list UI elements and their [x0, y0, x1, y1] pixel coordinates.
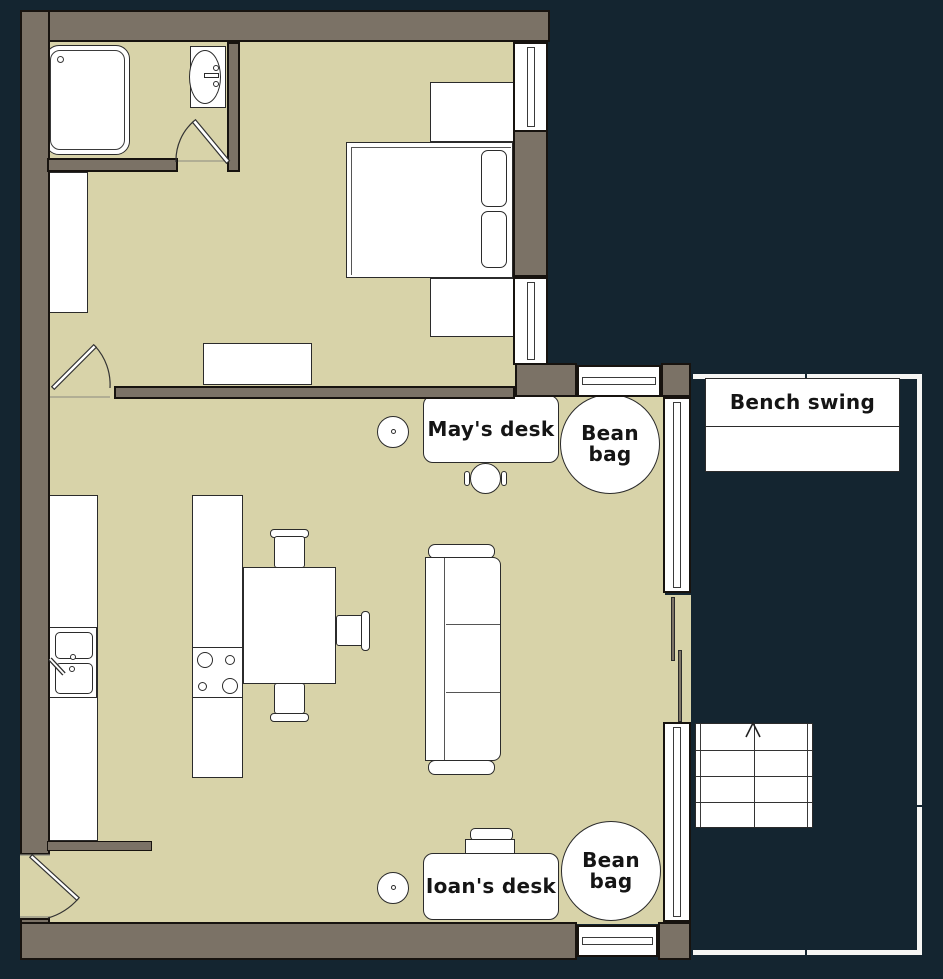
stairs[interactable]	[695, 723, 813, 828]
bedroom-window-top[interactable]	[513, 42, 548, 132]
chair-south-backrest	[270, 713, 309, 722]
bedside-cabinet-bottom[interactable]	[430, 278, 515, 337]
wall-bottom-right-block	[658, 922, 691, 960]
bathroom-faucet-knob-bottom	[213, 81, 219, 87]
may-chair-armrest-right	[501, 471, 507, 486]
balcony-railing-bottom	[693, 950, 922, 955]
burner-large-top	[197, 652, 213, 668]
stool-top-dot	[391, 429, 396, 434]
wall-kitchen-stub	[47, 841, 152, 851]
dresser[interactable]	[203, 343, 312, 385]
bathroom-faucet	[204, 73, 219, 78]
window-glass	[673, 402, 681, 588]
bedside-cabinet-top[interactable]	[430, 82, 515, 142]
wall-top	[20, 10, 550, 42]
living-window-east-lower[interactable]	[663, 722, 691, 922]
sofa-cushion-divider-2	[446, 692, 500, 693]
chair-north-seat[interactable]	[274, 536, 305, 568]
railing-joint-bottom	[805, 950, 807, 955]
pillow-bottom	[481, 211, 507, 268]
window-glass	[673, 727, 681, 917]
bean-bag-bottom[interactable]: Bean bag	[561, 821, 661, 921]
stairs-center-line	[754, 724, 755, 827]
wall-corner-block	[515, 363, 577, 397]
window-glass	[582, 377, 656, 385]
floor-plan: May's desk Bean bag Ioan's desk Bean bag…	[0, 0, 943, 979]
window-glass	[582, 937, 653, 945]
sofa-back-line	[444, 558, 445, 760]
living-window-north[interactable]	[577, 365, 661, 397]
railing-joint-right	[917, 805, 922, 807]
window-glass	[527, 282, 535, 360]
wall-left-upper	[20, 10, 50, 855]
chair-east-seat[interactable]	[336, 615, 364, 646]
may-chair[interactable]	[470, 463, 501, 494]
ioan-chair-seat[interactable]	[465, 839, 515, 854]
bean-bag-top[interactable]: Bean bag	[560, 394, 660, 494]
sliding-door-floor	[663, 595, 691, 722]
shower-drain	[57, 56, 64, 63]
wall-bedroom-divider	[114, 386, 515, 399]
burner-large-bottom	[222, 678, 238, 694]
bench-swing-label: Bench swing	[730, 392, 875, 413]
shower-inner-rim	[50, 50, 125, 150]
may-desk[interactable]: May's desk	[423, 395, 559, 463]
balcony-railing-right	[917, 374, 922, 955]
chair-east-backrest	[361, 611, 370, 651]
ioan-desk-label: Ioan's desk	[426, 876, 556, 897]
stool-bottom-dot	[391, 885, 396, 890]
sink-knob-bottom	[69, 666, 75, 672]
window-glass	[527, 47, 535, 127]
wall-bedroom-right-mid	[513, 130, 548, 277]
bench-swing[interactable]: Bench swing	[705, 378, 900, 472]
wall-bottom	[20, 922, 577, 960]
pillow-top	[481, 150, 507, 207]
living-window-south[interactable]	[577, 925, 658, 957]
wall-bathroom-bottom	[47, 158, 178, 172]
ioan-desk[interactable]: Ioan's desk	[423, 853, 559, 920]
sliding-door-panel-1[interactable]	[671, 597, 675, 661]
sliding-door-panel-2[interactable]	[678, 650, 682, 722]
bedroom-window-bottom[interactable]	[513, 277, 548, 365]
wardrobe[interactable]	[48, 172, 88, 313]
wall-top-right-block	[661, 363, 691, 397]
sofa-armrest-bottom	[428, 760, 495, 775]
may-desk-label: May's desk	[428, 419, 555, 440]
burner-small-bottom	[198, 682, 207, 691]
burner-small-top	[225, 655, 235, 665]
dining-table[interactable]	[243, 567, 336, 684]
bathroom-faucet-knob-top	[213, 65, 219, 71]
bean-bag-top-label: Bean bag	[579, 423, 641, 465]
kitchen-island[interactable]	[192, 495, 243, 778]
bench-swing-seat: Bench swing	[706, 379, 899, 427]
chair-south-seat[interactable]	[274, 683, 305, 714]
living-window-east-upper[interactable]	[663, 397, 691, 593]
sink-knob-top	[70, 654, 76, 660]
entry-door-floor	[20, 855, 50, 918]
wall-bathroom-right	[227, 42, 240, 172]
sofa[interactable]	[425, 557, 501, 761]
bean-bag-bottom-label: Bean bag	[580, 850, 642, 892]
sofa-cushion-divider-1	[446, 624, 500, 625]
